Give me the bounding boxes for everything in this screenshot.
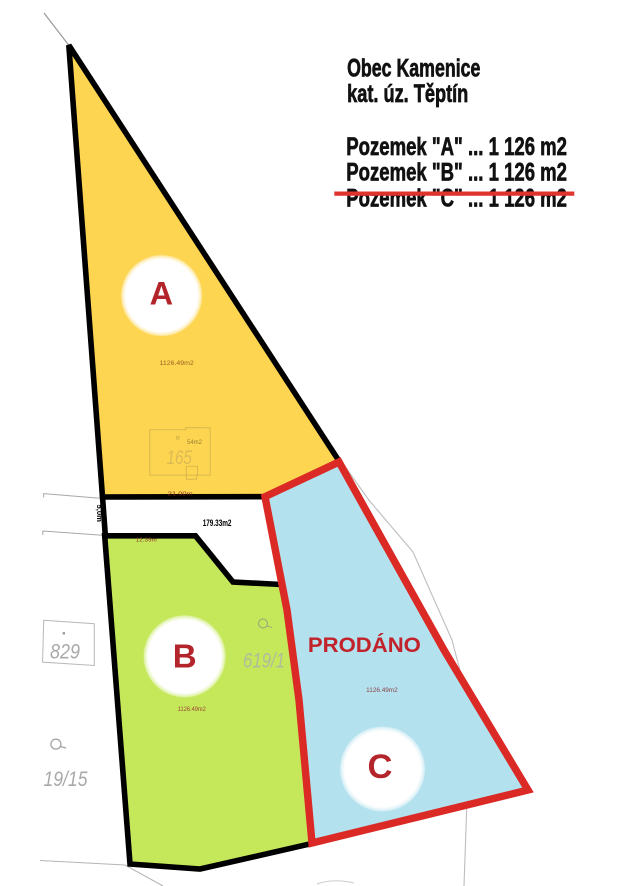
svg-text:B: B — [173, 637, 197, 674]
svg-text:C: C — [368, 748, 393, 786]
svg-text:Pozemek "B" ... 1 126 m2: Pozemek "B" ... 1 126 m2 — [346, 159, 567, 187]
svg-text:12.39m: 12.39m — [136, 537, 157, 543]
svg-text:179.33m2: 179.33m2 — [203, 518, 232, 528]
svg-text:Pozemek "A" ... 1 126 m2: Pozemek "A" ... 1 126 m2 — [346, 133, 567, 161]
svg-text:619/1: 619/1 — [243, 650, 285, 673]
svg-text:A: A — [150, 275, 173, 311]
svg-text:21.00m: 21.00m — [168, 492, 193, 498]
svg-text:5,0m: 5,0m — [95, 505, 102, 523]
svg-text:1126.49m2: 1126.49m2 — [366, 688, 398, 694]
svg-text:PRODÁNO: PRODÁNO — [308, 632, 421, 657]
svg-text:54m2: 54m2 — [187, 440, 203, 446]
svg-text:165: 165 — [167, 448, 193, 469]
svg-text:Pozemek "C" ... 1 126 m2: Pozemek "C" ... 1 126 m2 — [346, 184, 567, 212]
svg-text:1126.49m2: 1126.49m2 — [160, 361, 195, 367]
svg-text:Obec Kamenice: Obec Kamenice — [347, 55, 480, 83]
svg-text:829: 829 — [50, 641, 80, 664]
svg-text:kat. úz. Těptín: kat. úz. Těptín — [347, 80, 468, 108]
svg-text:1126.49m2: 1126.49m2 — [178, 707, 207, 713]
svg-text:19/15: 19/15 — [44, 768, 88, 791]
